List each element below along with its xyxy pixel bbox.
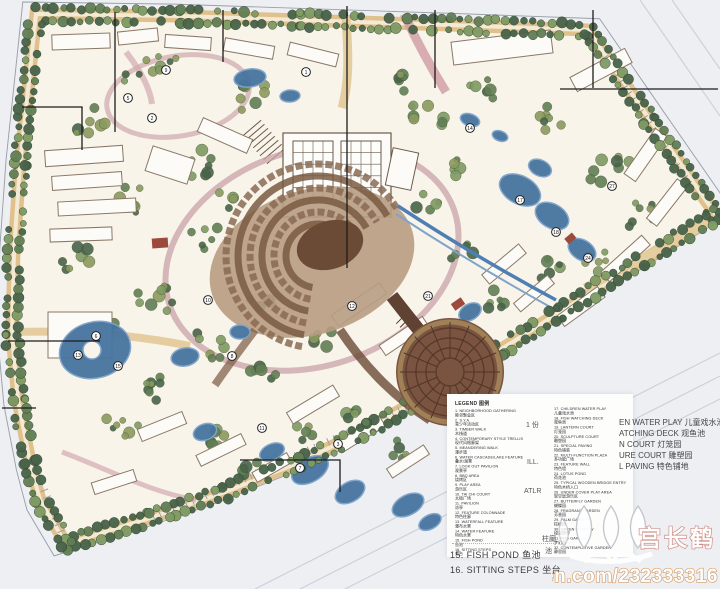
svg-text:24: 24 — [585, 256, 591, 262]
legend-fragment: ILL. — [527, 459, 539, 466]
plan-marker: 5 — [124, 94, 133, 103]
plan-marker: 17 — [516, 196, 525, 205]
plan-marker: 14 — [466, 124, 475, 133]
legend-item: 26. UNDER COVER PLAY AREA架空层游乐区 — [554, 490, 638, 498]
svg-text:13: 13 — [75, 353, 81, 359]
legend-bottom-line: 16. SITTING STEPS 坐台 — [450, 563, 561, 576]
svg-text:6: 6 — [95, 334, 98, 340]
svg-text:2: 2 — [151, 116, 154, 122]
plan-marker: 15 — [114, 362, 123, 371]
legend-bottom-line: 15. FISH POND 鱼池 — [450, 548, 541, 561]
legend-item: 4. CONTEMPORARY STYLE TRELLIS现代风格廊架 — [455, 437, 539, 445]
legend-fragment: ATLR — [524, 488, 541, 495]
legend-title: LEGEND 图例 — [455, 399, 539, 407]
watermark-url: renren.com/232333316 — [552, 566, 718, 587]
overlay-legend-line: ATCHING DECK 观鱼池 — [619, 428, 720, 439]
svg-text:12: 12 — [349, 304, 355, 310]
plan-marker: 3 — [334, 440, 343, 449]
legend-item: 24. LOTUS POND荷花池 — [554, 472, 638, 480]
legend-item: 17. CHILDREN WATER PLAY儿童戏水池 — [554, 407, 638, 415]
svg-text:10: 10 — [205, 298, 211, 304]
handwriting-squiggle — [452, 543, 556, 547]
plan-marker: 8 — [228, 352, 237, 361]
watermark-name: 宫长鹤 — [638, 525, 716, 551]
legend-item: 25. TYPICAL WOODEN BRIDGE ENTRY特色木桥入口 — [554, 481, 638, 489]
legend-item: 8. BBQ AREA烧烤区 — [455, 474, 539, 482]
legend-fragment: 1 份 — [526, 420, 539, 430]
overlay-legend-line: L PAVING 特色铺地 — [619, 461, 720, 472]
svg-text:18: 18 — [553, 230, 559, 236]
plan-marker: 18 — [552, 228, 561, 237]
svg-text:1: 1 — [305, 70, 308, 76]
svg-text:17: 17 — [517, 198, 523, 204]
overlay-legend-lines: EN WATER PLAY 儿童戏水池ATCHING DECK 观鱼池N COU… — [619, 417, 720, 472]
svg-text:3: 3 — [337, 442, 340, 448]
legend-item: 14. WATER FEATURE特色水景 — [455, 529, 539, 537]
legend-item: 1. NEIGHBORHOOD GATHERING睦邻聚会区 — [455, 409, 539, 417]
plan-marker: 12 — [348, 302, 357, 311]
svg-text:15: 15 — [115, 364, 121, 370]
scanned-masterplan-page: 195261315108117314171824212712 LEGEND 图例… — [0, 0, 720, 589]
plan-marker: 2 — [148, 114, 157, 123]
watermark: 宫长鹤 renren.com/232333316 — [552, 502, 720, 589]
plan-marker: 27 — [608, 182, 617, 191]
svg-text:21: 21 — [425, 294, 431, 300]
plan-marker: 24 — [584, 254, 593, 263]
overlay-legend-line: EN WATER PLAY 儿童戏水池 — [619, 417, 720, 428]
svg-text:27: 27 — [609, 184, 615, 190]
svg-text:14: 14 — [467, 126, 473, 132]
plan-marker: 7 — [296, 464, 305, 473]
svg-text:5: 5 — [127, 96, 130, 102]
plan-marker: 21 — [424, 292, 433, 301]
plan-marker: 10 — [204, 296, 213, 305]
plan-marker: 11 — [258, 424, 267, 433]
legend-item: 12. FEATURE COLONNADE特色柱廊 — [455, 511, 539, 519]
plan-marker: 6 — [92, 332, 101, 341]
svg-text:11: 11 — [259, 426, 264, 432]
legend-item: 13. WATERFALL FEATURE瀑布水景 — [455, 520, 539, 528]
plan-marker: 1 — [302, 68, 311, 77]
legend-item: 5. MEANDERING WALK漫步道 — [455, 446, 539, 454]
legend-fragment: 池 — [545, 546, 552, 556]
legend-item: 11. PAVILION凉亭 — [455, 502, 539, 510]
svg-text:7: 7 — [299, 466, 302, 472]
svg-text:9: 9 — [165, 68, 168, 74]
plan-marker: 13 — [74, 351, 83, 360]
overlay-legend-line: URE COURT 雕塑园 — [619, 450, 720, 461]
plan-marker: 9 — [162, 66, 171, 75]
overlay-legend-line: N COURT 灯笼园 — [619, 439, 720, 450]
svg-text:8: 8 — [231, 354, 234, 360]
